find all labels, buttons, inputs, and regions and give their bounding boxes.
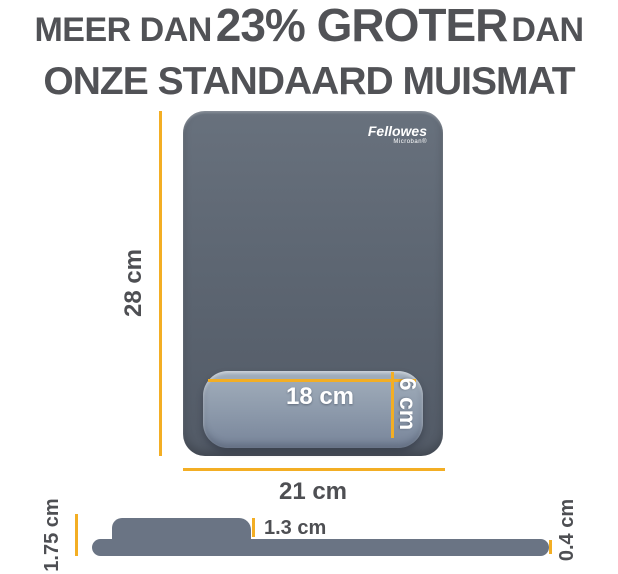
total-height-tick: [75, 514, 78, 556]
total-height-label: 1.75 cm: [41, 491, 63, 574]
side-view-wrist-rest: [112, 518, 251, 546]
headline-emphasis: 23% GROTER: [216, 0, 508, 51]
headline-line2: ONZE STANDAARD MUISMAT: [0, 62, 618, 102]
wrist-rest-profile-tick: [252, 518, 255, 537]
mat-thickness-tick: [549, 540, 552, 554]
fellowes-logo: Fellowes: [368, 124, 427, 138]
width-dimension-label: 21 cm: [263, 478, 363, 506]
wrist-rest-height-label: 6 cm: [396, 370, 420, 438]
mat-thickness-label: 0.4 cm: [556, 486, 578, 574]
wrist-rest-height-line: [391, 372, 394, 438]
brand-logo: Fellowes Microban®: [368, 124, 427, 146]
height-dimension-label: 28 cm: [122, 243, 146, 323]
wrist-rest-width-label: 18 cm: [258, 383, 382, 411]
product-infographic: MEER DAN 23% GROTER DAN ONZE STANDAARD M…: [0, 0, 618, 574]
height-dimension-line: [159, 111, 162, 456]
width-dimension-line: [183, 468, 445, 471]
headline-suffix: DAN: [511, 11, 583, 49]
microban-logo: Microban®: [368, 138, 427, 146]
headline: MEER DAN 23% GROTER DAN ONZE STANDAARD M…: [0, 2, 618, 102]
wrist-rest-profile-label: 1.3 cm: [264, 517, 326, 540]
headline-line1: MEER DAN 23% GROTER DAN: [0, 2, 618, 60]
wrist-rest-width-line: [208, 379, 416, 382]
headline-prefix: MEER DAN: [34, 11, 211, 49]
